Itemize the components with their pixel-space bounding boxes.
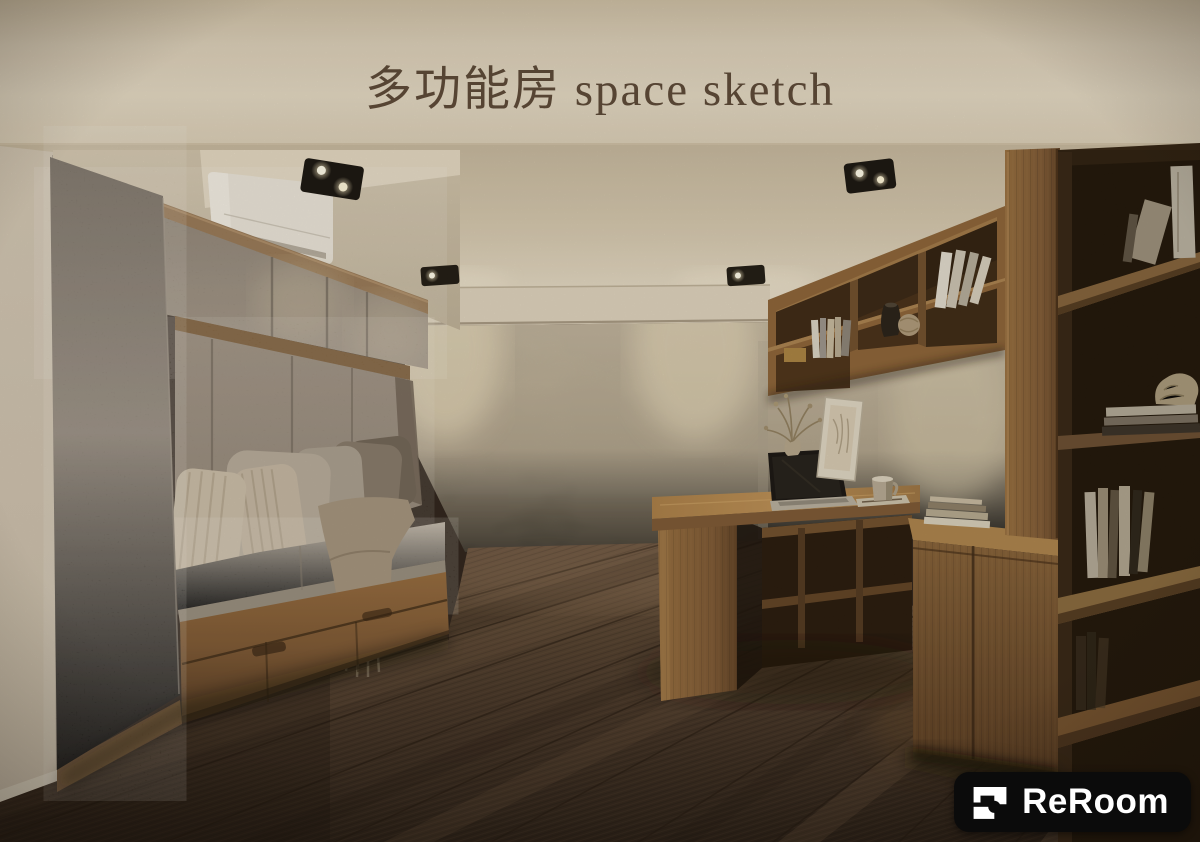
watermark-badge: ReRoom — [954, 772, 1191, 832]
watermark-brand: ReRoom — [1022, 782, 1169, 822]
page-title: 多功能房 space sketch — [0, 50, 1200, 119]
interior-photo: 多功能房 space sketch ReRoom — [0, 0, 1200, 842]
vignette — [0, 0, 1200, 842]
reroom-logo-icon — [971, 784, 1009, 821]
photo-canvas — [0, 0, 1200, 842]
